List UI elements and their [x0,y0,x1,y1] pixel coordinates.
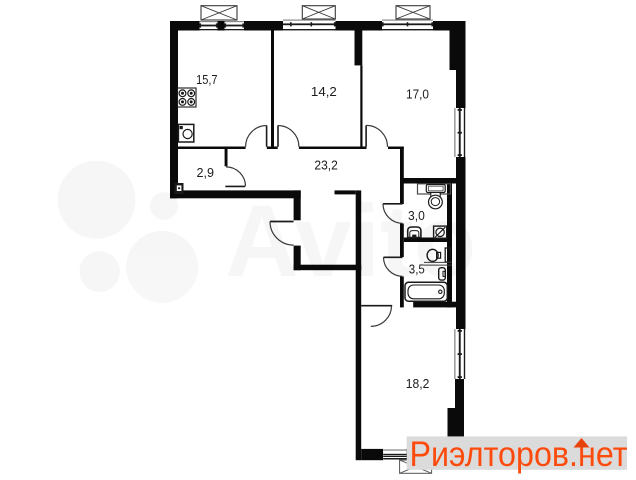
svg-text:Avito: Avito [225,184,476,298]
svg-text:2,9: 2,9 [197,165,215,180]
svg-text:Риэлторов.нет: Риэлторов.нет [410,435,628,474]
svg-text:17,0: 17,0 [406,87,429,102]
svg-text:18,2: 18,2 [406,376,430,391]
svg-text:15,7: 15,7 [196,72,217,87]
svg-text:14,2: 14,2 [311,84,337,99]
svg-text:23,2: 23,2 [314,158,337,173]
